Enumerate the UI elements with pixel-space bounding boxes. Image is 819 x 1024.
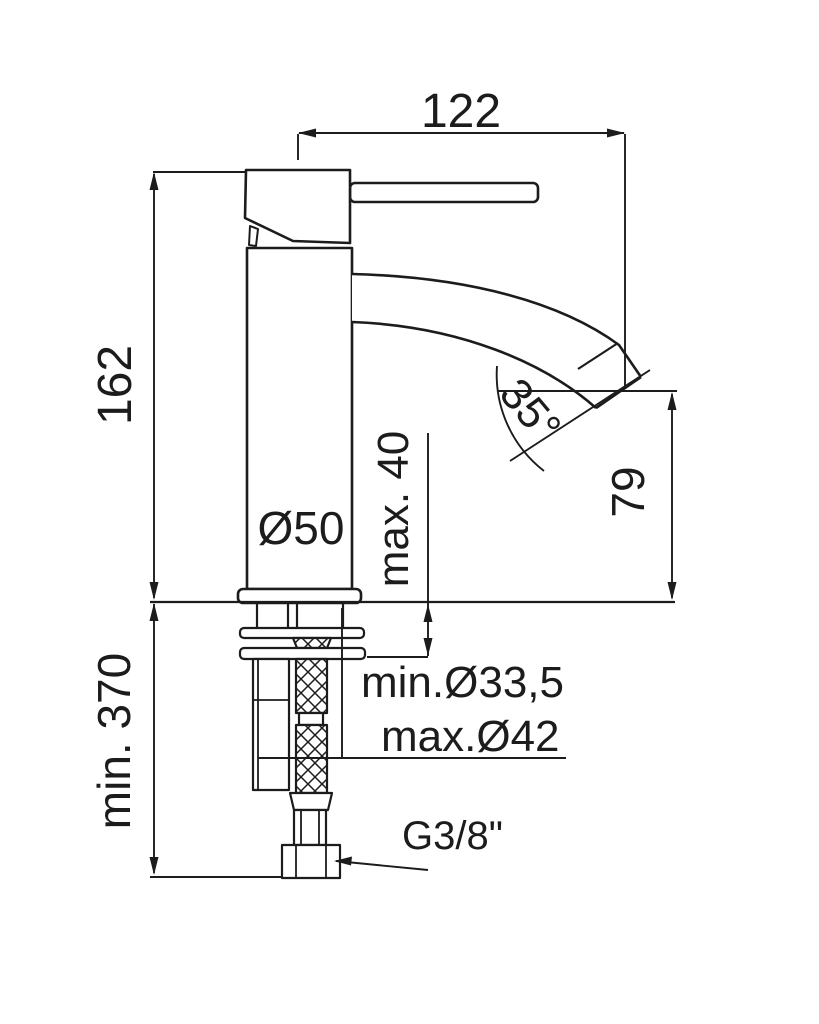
handle-lever [350, 183, 538, 202]
flex-hose-upper [296, 659, 327, 713]
label-spout-reach: 122 [421, 85, 501, 138]
label-body-diameter: Ø50 [258, 502, 345, 554]
cap-stem-detail [249, 226, 258, 246]
label-min-clearance-below: min. 370 [88, 653, 140, 829]
arrowhead [150, 603, 159, 621]
flex-hose-lower [296, 725, 327, 793]
mounting-washer-lower [240, 648, 365, 659]
hose-ferrule [290, 793, 332, 810]
arrowhead [150, 582, 159, 600]
mounting-washer-upper [240, 628, 364, 638]
hose-upper-stub [293, 638, 331, 648]
handle-cap [245, 170, 350, 243]
label-connection-thread: G3/8" [402, 814, 503, 858]
arrowhead [424, 638, 433, 656]
arrowhead [668, 582, 677, 600]
arrowhead [607, 129, 625, 138]
threaded-shank [257, 604, 343, 627]
arrowhead [150, 857, 159, 875]
label-outlet-angle: 35° [490, 369, 570, 451]
arrowhead [150, 172, 159, 190]
technical-drawing-page: 122 162 min. 370 max. 40 79 35° Ø50 min.… [0, 0, 819, 1024]
label-height-above-deck: 162 [89, 345, 142, 425]
arrowhead [668, 392, 677, 410]
below-deck-assembly [240, 604, 365, 878]
label-outlet-height: 79 [602, 466, 654, 517]
hose-end-tube [294, 810, 326, 845]
label-max-deck-thickness: max. 40 [369, 431, 418, 588]
label-hole-min-diameter: min.Ø33,5 [361, 658, 564, 707]
hose-coupling [299, 713, 323, 725]
faucet-technical-drawing: 122 162 min. 370 max. 40 79 35° Ø50 min.… [0, 0, 819, 1024]
label-hole-max-diameter: max.Ø42 [381, 712, 560, 761]
arrowhead [298, 129, 316, 138]
connection-nut [282, 845, 340, 878]
arrowhead [424, 604, 433, 622]
